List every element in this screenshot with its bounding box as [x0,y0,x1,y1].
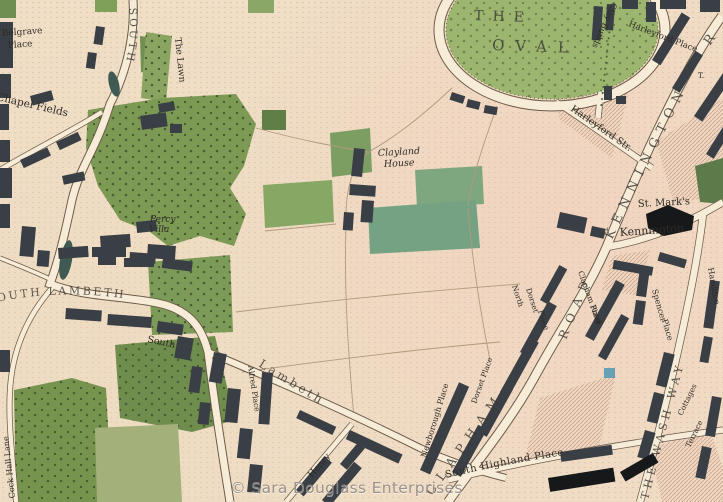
historical-map: THE OVAL Clay Builds Harleyford Str. Har… [0,0,723,502]
map-canvas: THE OVAL Clay Builds Harleyford Str. Har… [0,0,723,502]
label-clayland-house: House [383,157,416,170]
label-oval: OVAL [492,36,579,57]
svg-text:SOUTH: SOUTH [123,7,139,65]
label-turnpike: T. [698,71,704,80]
label-the-lawn: The Lawn [172,37,187,83]
label-percy: Percy [149,215,176,225]
label-north-dorset-2: Dorset [524,287,540,314]
svg-text:SOUTH LAMBETH: SOUTH LAMBETH [0,284,127,307]
watermark: © Sara Douglass Enterprises [0,479,693,497]
label-south-road: SOUTH [123,7,139,65]
label-south-lambeth: SOUTH LAMBETH [0,284,127,307]
label-percy-villa: Villa [149,225,169,235]
label-spencer: Spencer [650,288,668,323]
label-st-marks: St. Mark's [638,196,691,210]
label-north-dorset-1: North [510,284,526,308]
label-belgrave: Belgrave [2,26,43,39]
label-kennington: Kennington [619,222,684,239]
label-spencer-place: Place [660,318,675,342]
label-belgrave-place: Place [8,39,33,51]
water-square [604,368,615,378]
label-the: THE [474,8,533,26]
